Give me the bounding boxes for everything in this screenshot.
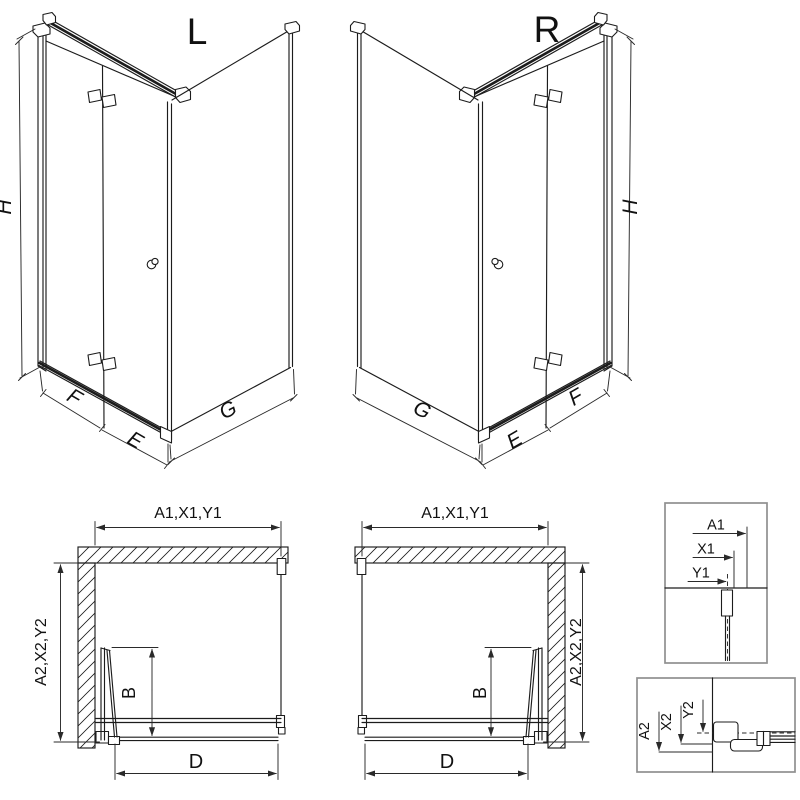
detail-label-y2: Y2: [681, 701, 697, 719]
dim-label-h-right: H: [619, 199, 642, 215]
wall-hatched-top-right: [355, 547, 565, 563]
detail-label-x1: X1: [697, 542, 715, 558]
wall-hatched-right: [548, 563, 565, 748]
detail-label-x2: X2: [659, 713, 675, 731]
wall-hatched-top: [78, 547, 288, 563]
plan-dim-d-right: D: [440, 751, 454, 773]
shower-enclosure-technical-drawing: L H F E G R H F E G A1,X1,Y1 A2,X2,Y2 B …: [0, 0, 800, 800]
perspective-view-left: L H F E G: [0, 11, 300, 469]
perspective-view-right: R H F E G: [351, 9, 643, 469]
plan-dim-b-right: B: [470, 687, 490, 699]
plan-view-left: A1,X1,Y1 A2,X2,Y2 B D: [33, 505, 288, 780]
detail-box-wall-profile-bottom: A2 X2 Y2: [637, 678, 795, 772]
plan-dim-d-left: D: [189, 751, 203, 773]
detail-label-y1: Y1: [692, 566, 710, 582]
detail-label-a1: A1: [707, 518, 725, 534]
dim-label-h-left: H: [0, 199, 16, 215]
technical-drawing-page: L H F E G R H F E G A1,X1,Y1 A2,X2,Y2 B …: [0, 0, 800, 800]
detail-wall-profile: [722, 590, 733, 616]
enclosure-drawing-left: [16, 13, 300, 469]
plan-view-right: A1,X1,Y1 A2,X2,Y2 B D: [355, 505, 589, 780]
detail-box-wall-profile-top: A1 X1 Y1: [665, 503, 767, 663]
plan-dim-top-right: A1,X1,Y1: [421, 505, 489, 522]
dim-label-g-right: G: [409, 396, 434, 424]
wall-hatched-left: [78, 563, 95, 748]
detail-label-a2: A2: [637, 722, 653, 740]
plan-dim-side-left: A2,X2,Y2: [33, 618, 50, 686]
plan-dim-top-left: A1,X1,Y1: [154, 505, 222, 522]
dim-label-e-left: E: [123, 427, 147, 454]
variant-label-right: R: [534, 9, 561, 50]
plan-dim-b-left: B: [119, 687, 139, 699]
plan-dim-side-right: A2,X2,Y2: [568, 618, 585, 686]
variant-label-left: L: [187, 11, 208, 52]
dim-label-g-left: G: [216, 396, 241, 424]
enclosure-drawing-right: [351, 13, 635, 469]
dim-label-e-right: E: [503, 426, 527, 453]
